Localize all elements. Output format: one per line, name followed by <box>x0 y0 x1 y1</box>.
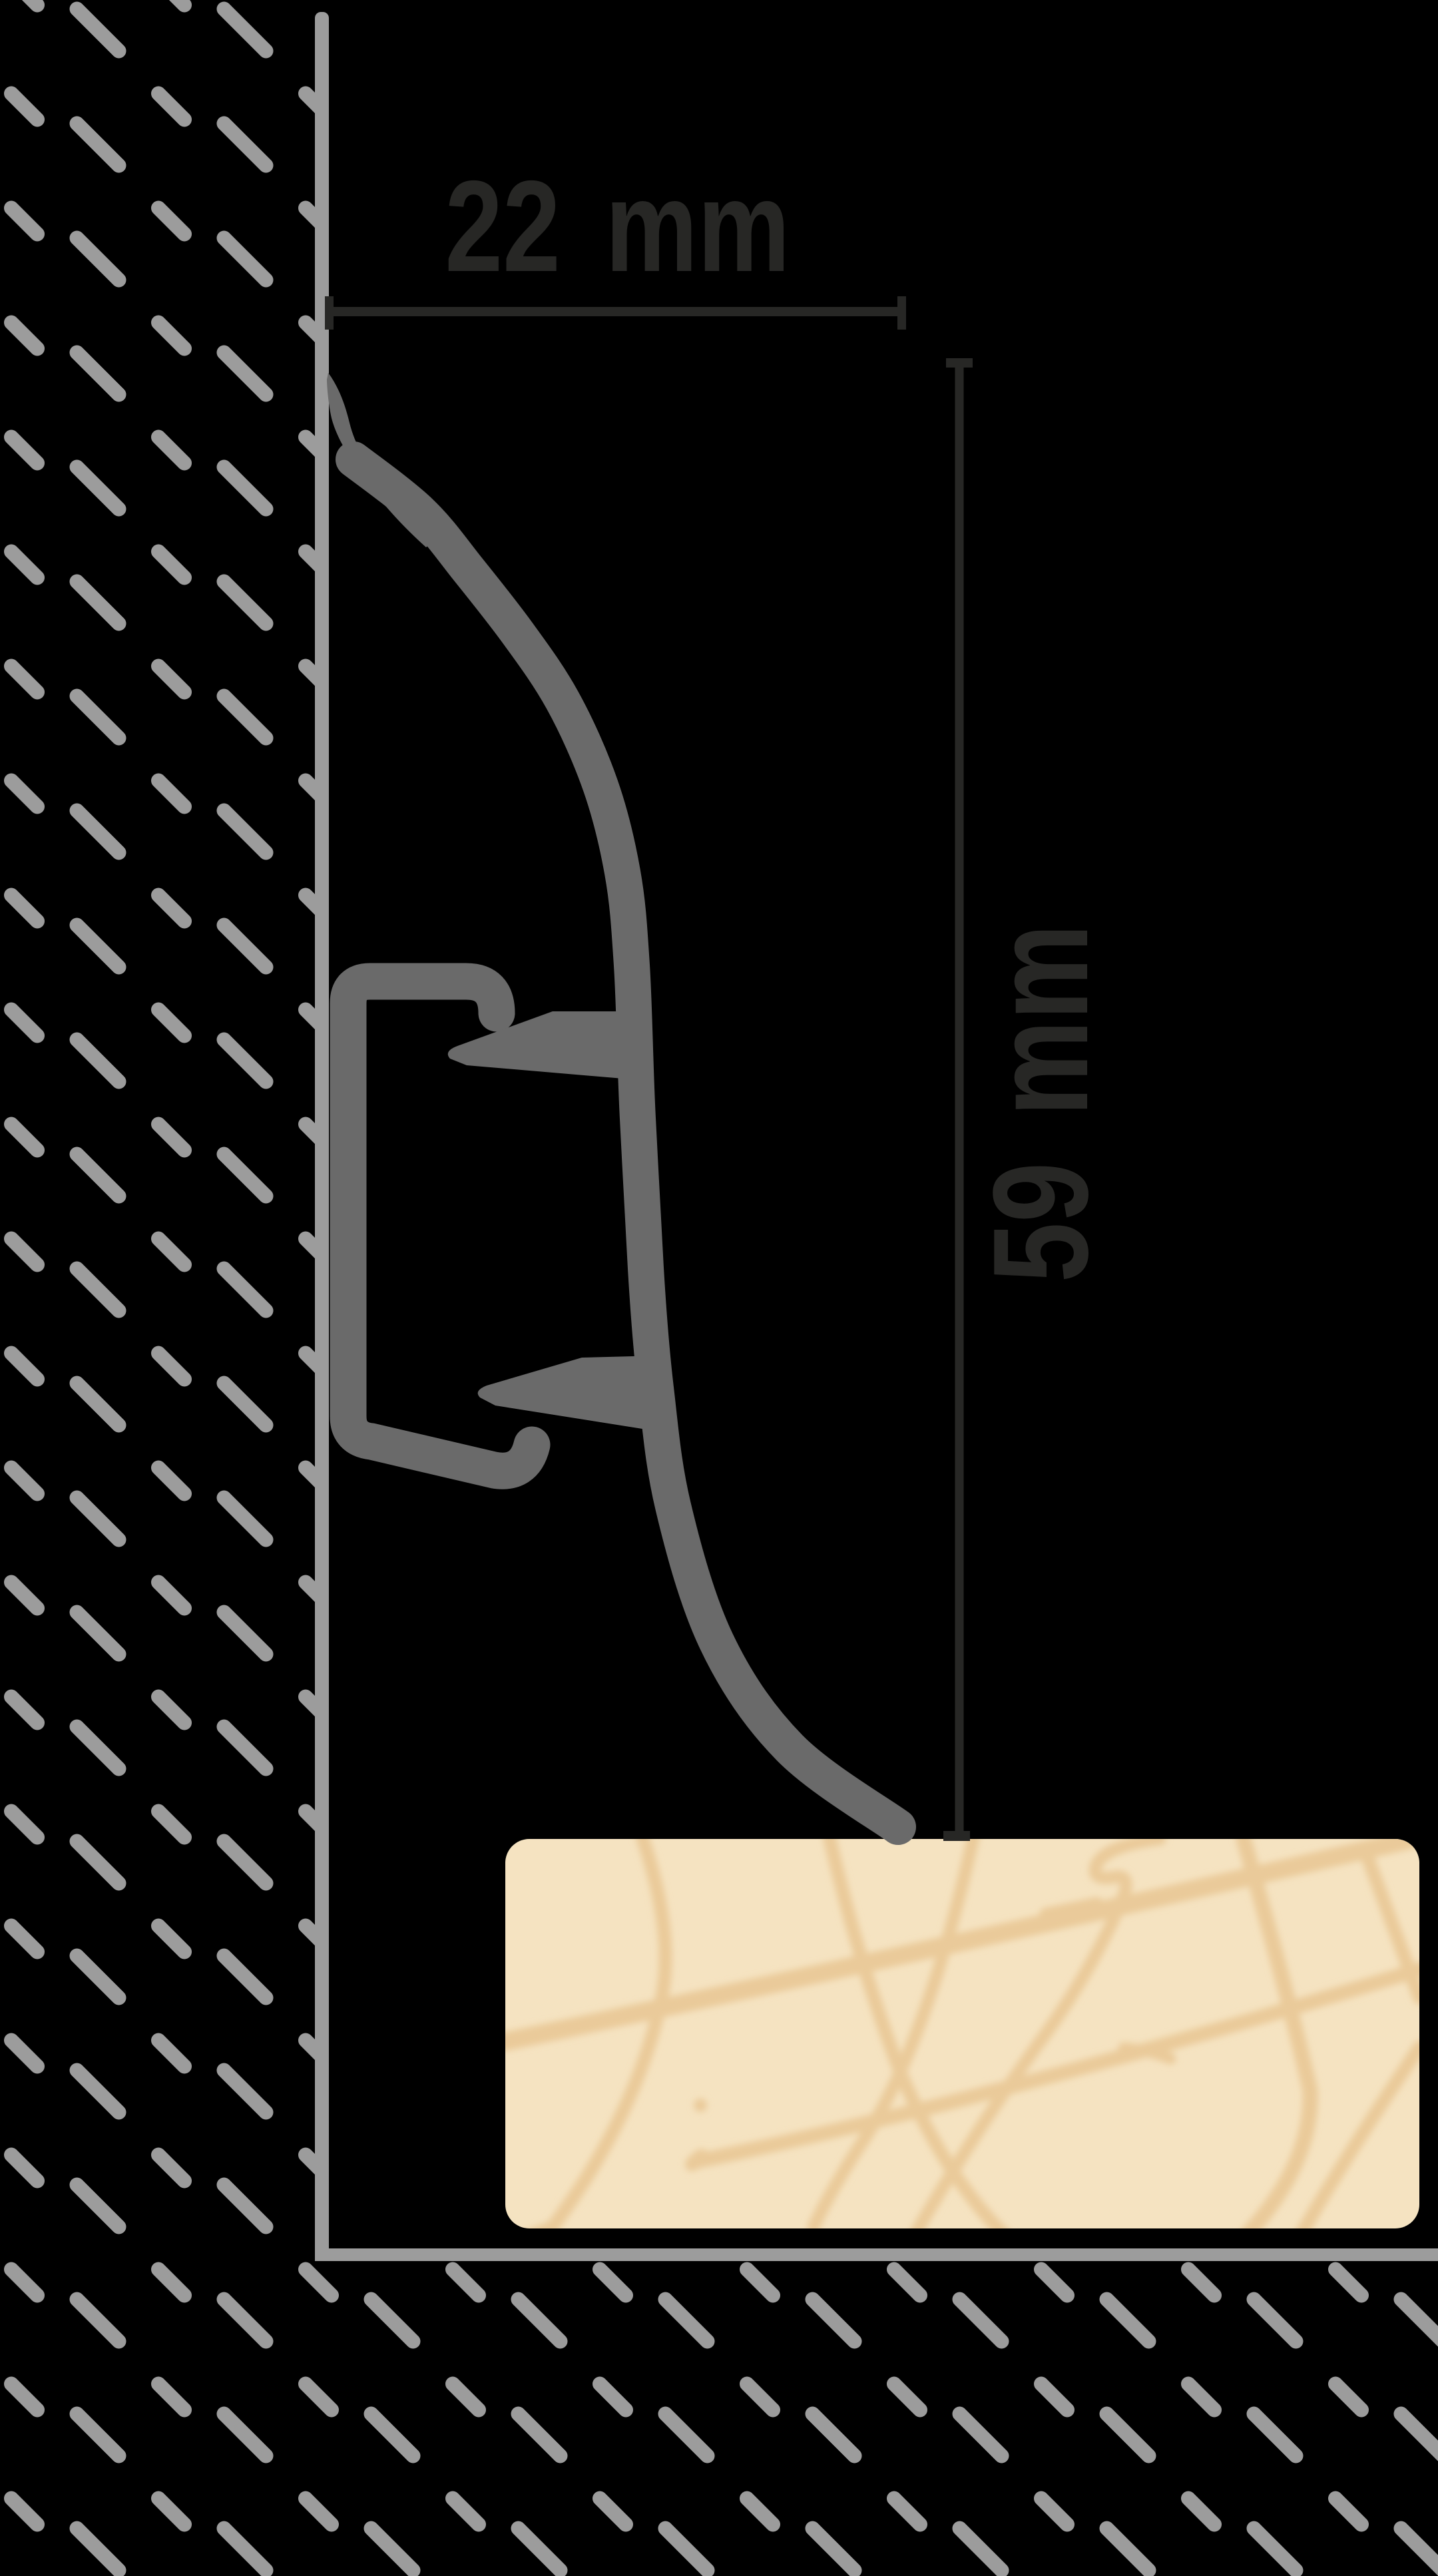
svg-text:59 mm: 59 mm <box>965 924 1116 1283</box>
svg-text:22 mm: 22 mm <box>445 154 790 299</box>
